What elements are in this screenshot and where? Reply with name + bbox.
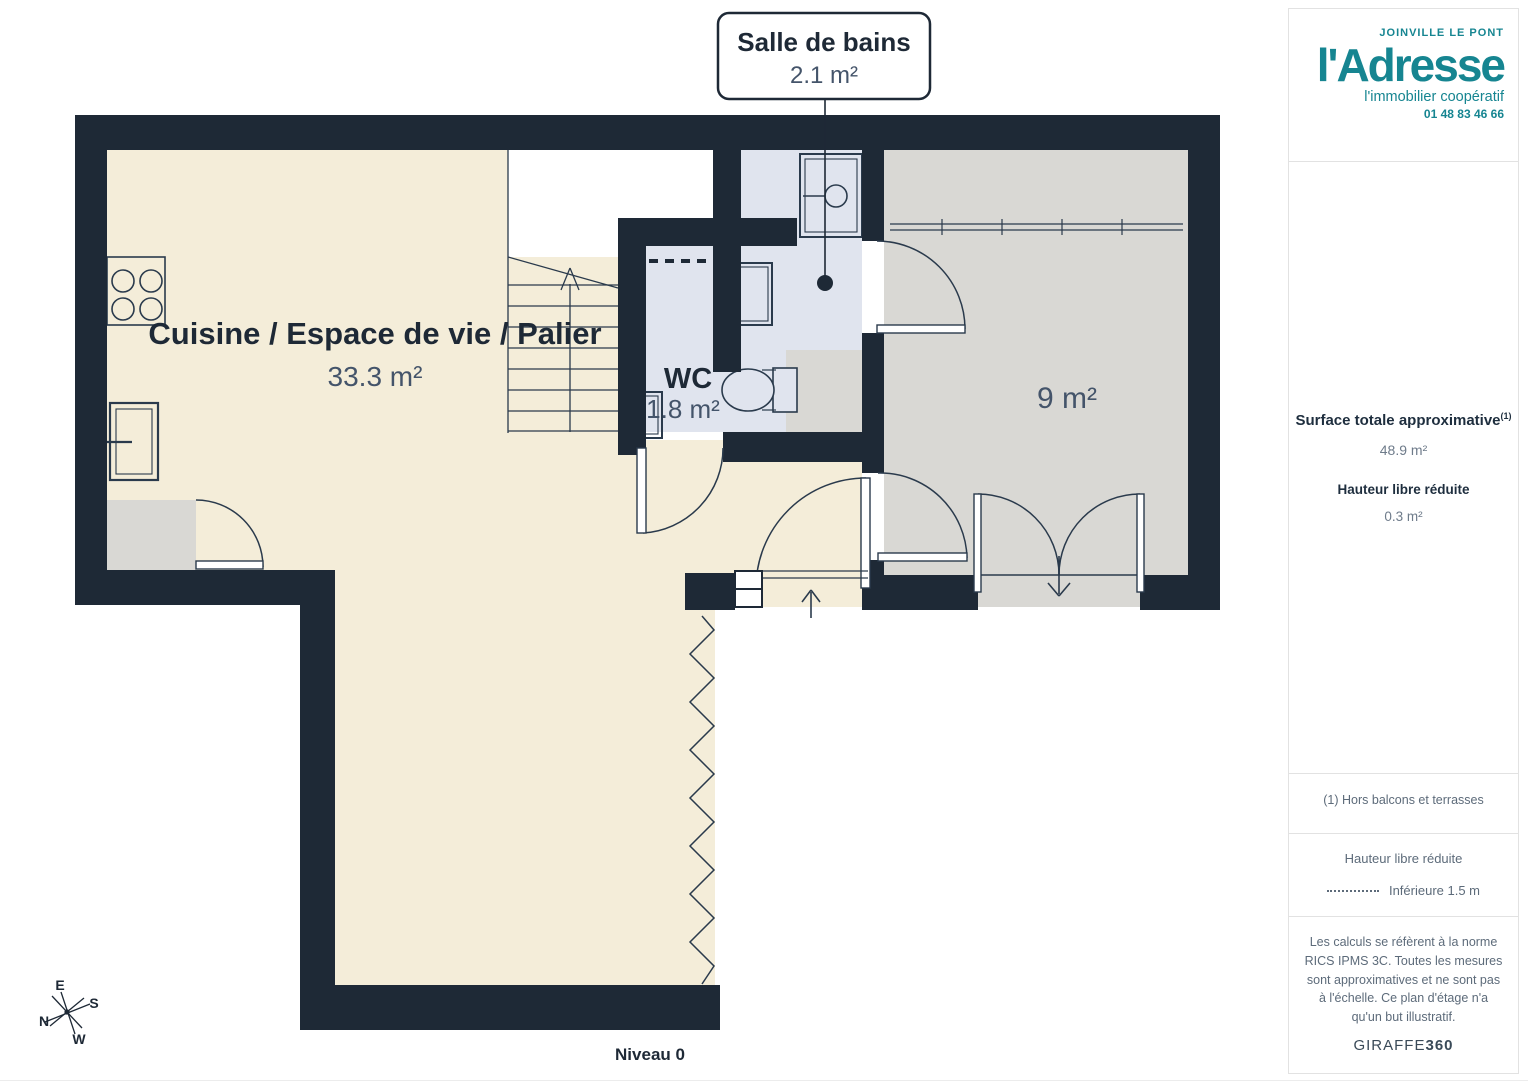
callout-room-area: 2.1 m²: [790, 62, 858, 89]
main-room-name: Cuisine / Espace de vie / Palier: [148, 316, 601, 351]
agency-city: JOINVILLE LE PONT: [1317, 27, 1504, 39]
callout-anchor-dot: [817, 275, 833, 291]
agency-tagline: l'immobilier coopératif: [1317, 89, 1504, 105]
main-room-area: 33.3 m²: [328, 361, 423, 392]
callout-room-name: Salle de bains: [737, 27, 910, 57]
divider: [1289, 773, 1518, 774]
floor-areas: [107, 150, 1188, 985]
surface-footnote-mark: (1): [1501, 411, 1512, 421]
divider: [1289, 161, 1518, 162]
compass-n: N: [39, 1013, 49, 1029]
balcony-footnote: (1) Hors balcons et terrasses: [1289, 793, 1518, 807]
giraffe-text: GIRAFFE: [1353, 1037, 1425, 1054]
agency-logo: JOINVILLE LE PONT l'Adresse l'immobilier…: [1317, 27, 1504, 121]
toilet-icon: [722, 368, 797, 412]
legend-item-label: Inférieure 1.5 m: [1389, 883, 1480, 898]
surface-summary: Surface totale approximative(1) 48.9 m² …: [1289, 411, 1518, 524]
info-sidebar: JOINVILLE LE PONT l'Adresse l'immobilier…: [1288, 8, 1519, 1074]
divider: [1289, 916, 1518, 917]
dotted-line-icon: [1327, 890, 1379, 892]
compass-s: S: [89, 995, 98, 1011]
legend-row: Inférieure 1.5 m: [1289, 883, 1518, 898]
divider: [1289, 833, 1518, 834]
legend-block: Hauteur libre réduite Inférieure 1.5 m: [1289, 851, 1518, 898]
floorplan-page: Salle de bains 2.1 m² Cuisine / Espace d…: [0, 0, 1528, 1081]
agency-name: l'Adresse: [1317, 41, 1504, 89]
reduced-height-value: 0.3 m²: [1289, 509, 1518, 524]
level-label: Niveau 0: [615, 1045, 685, 1064]
giraffe360-logo: GIRAFFE360: [1289, 1037, 1518, 1054]
floorplan-canvas: Salle de bains 2.1 m² Cuisine / Espace d…: [0, 0, 1288, 1080]
surface-total-label: Surface totale approximative(1): [1289, 411, 1518, 429]
compass-w: W: [72, 1031, 86, 1047]
wc-name: WC: [664, 363, 712, 395]
compass-e: E: [55, 977, 64, 993]
surface-total-value: 48.9 m²: [1289, 442, 1518, 458]
legend-title: Hauteur libre réduite: [1289, 851, 1518, 866]
disclaimer-text: Les calculs se réfèrent à la norme RICS …: [1303, 933, 1504, 1027]
stove-icon: [107, 257, 165, 325]
bedroom-area: 9 m²: [1037, 382, 1097, 415]
reduced-height-label: Hauteur libre réduite: [1289, 482, 1518, 497]
agency-phone: 01 48 83 46 66: [1317, 107, 1504, 121]
wc-area: 1.8 m²: [646, 394, 720, 424]
surface-total-text: Surface totale approximative: [1295, 412, 1500, 429]
compass-rose-icon: E S N W: [39, 977, 99, 1047]
giraffe-360: 360: [1425, 1037, 1453, 1054]
